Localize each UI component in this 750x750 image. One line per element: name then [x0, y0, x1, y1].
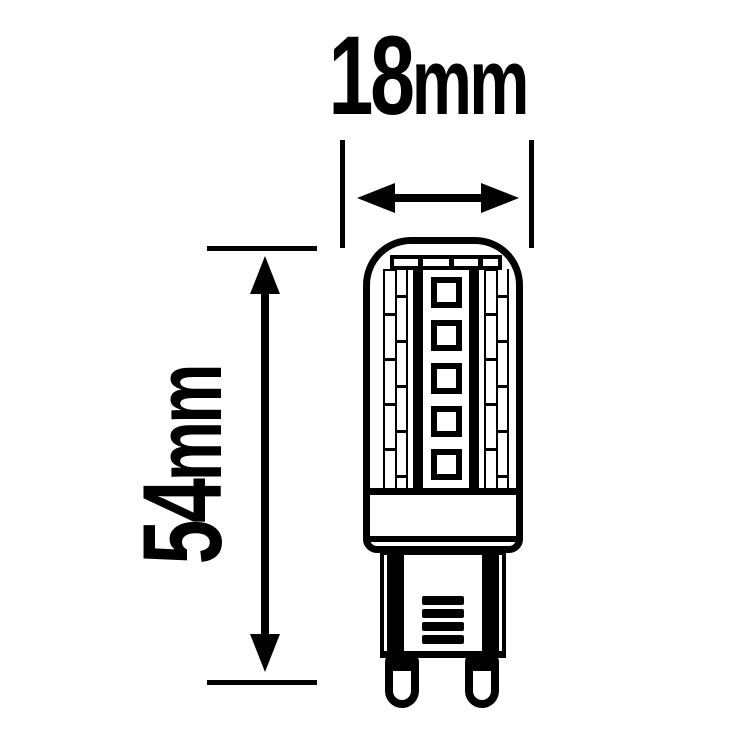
- side-led-chip: [397, 388, 407, 430]
- side-led-column: [385, 271, 395, 486]
- width-value: 18: [329, 20, 412, 132]
- glass-lip-line: [366, 536, 520, 542]
- led-chip: [431, 277, 462, 308]
- pin-loop-top: [391, 662, 415, 671]
- width-dimension-text: 18 mm: [329, 20, 527, 132]
- side-led-chip: [397, 433, 407, 475]
- pin-conductor-right: [482, 551, 499, 653]
- cap-divider: [478, 255, 483, 270]
- vent-slat: [422, 635, 464, 644]
- side-led-chip: [498, 343, 508, 385]
- arrow-down-icon: [250, 634, 280, 672]
- g9-pin-loop-left: [385, 656, 419, 708]
- height-extension-line-top: [207, 246, 317, 251]
- side-led-chip: [385, 406, 395, 448]
- side-led-strip-right: [484, 269, 509, 488]
- side-led-chip: [486, 316, 496, 358]
- vent-slat: [422, 622, 464, 631]
- dimension-diagram: 18 mm 54 mm: [0, 0, 750, 750]
- cap-divider: [449, 255, 454, 270]
- led-chip: [431, 449, 462, 480]
- led-chip: [431, 363, 462, 394]
- side-led-chip: [385, 451, 395, 488]
- side-led-strip-left: [383, 269, 408, 488]
- pin-loop-top: [471, 662, 495, 671]
- height-dimension-arrow: [261, 289, 269, 639]
- side-led-chip: [397, 269, 407, 295]
- side-led-chip: [486, 406, 496, 448]
- arrow-up-icon: [250, 256, 280, 294]
- side-led-chip: [397, 478, 407, 488]
- side-led-column: [486, 271, 496, 486]
- side-led-chip: [486, 271, 496, 313]
- side-led-chip: [486, 451, 496, 488]
- arrow-left-icon: [357, 183, 395, 213]
- side-led-chip: [486, 361, 496, 403]
- side-led-chip: [498, 433, 508, 475]
- width-unit: mm: [412, 35, 527, 129]
- side-led-column: [498, 269, 508, 486]
- width-dimension-label: 18 mm: [303, 20, 553, 140]
- cap-divider: [418, 255, 423, 270]
- height-value: 54: [127, 481, 239, 564]
- height-dimension-label: 54 mm: [127, 290, 247, 640]
- vent-slat: [422, 596, 464, 605]
- led-chip: [431, 320, 462, 351]
- side-led-chip: [498, 388, 508, 430]
- side-led-chip: [498, 298, 508, 340]
- center-led-column: [413, 269, 479, 488]
- side-led-chip: [498, 269, 508, 295]
- led-chip: [431, 406, 462, 437]
- side-led-chip: [498, 478, 508, 488]
- g9-pin-loop-right: [465, 656, 499, 708]
- vent-slats: [422, 596, 464, 648]
- vent-slat: [422, 609, 464, 618]
- side-led-column: [397, 269, 407, 486]
- side-led-chip: [397, 298, 407, 340]
- height-extension-line-bottom: [207, 680, 317, 685]
- led-assembly: [383, 253, 509, 488]
- height-unit: mm: [142, 366, 236, 481]
- width-extension-line-right: [529, 140, 534, 248]
- height-dimension-text: 54 mm: [127, 366, 239, 564]
- side-led-chip: [385, 316, 395, 358]
- pin-conductor-left: [387, 551, 404, 653]
- glass-neck-line: [365, 488, 521, 495]
- width-extension-line-left: [340, 140, 345, 248]
- led-assembly-top-cap: [390, 255, 502, 270]
- side-led-chip: [397, 343, 407, 385]
- arrow-right-icon: [481, 183, 519, 213]
- side-led-chip: [385, 361, 395, 403]
- side-led-chip: [385, 271, 395, 313]
